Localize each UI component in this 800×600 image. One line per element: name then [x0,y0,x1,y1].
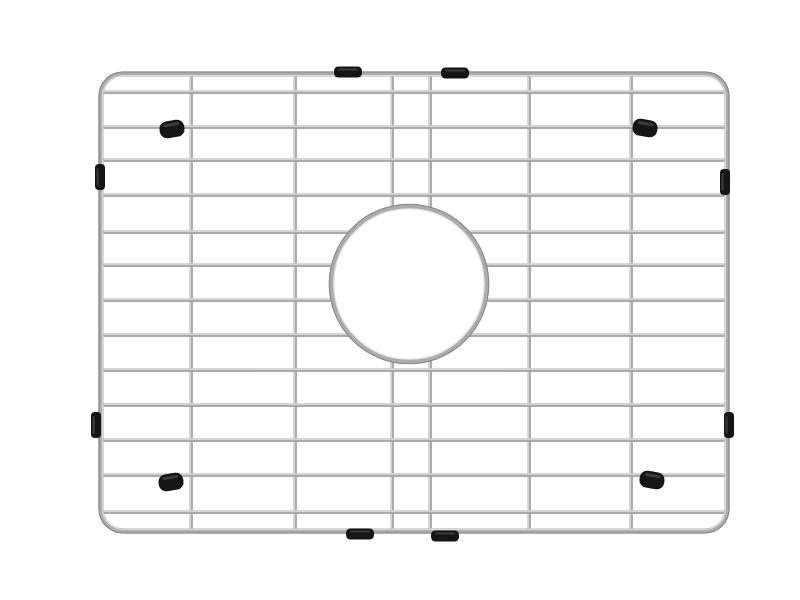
vertical-wire [294,76,296,529]
horizontal-wire [103,299,725,301]
frame-bumper-horizontal [346,529,374,540]
horizontal-wire [103,511,725,513]
rubber-bumpers [91,67,734,542]
horizontal-wire [103,334,725,336]
frame-bumper-horizontal [441,68,469,79]
wire-lattice [103,76,725,529]
horizontal-wire [103,439,725,441]
frame-bumper-vertical [91,412,101,438]
rubber-foot [638,469,666,490]
vertical-wire [391,76,393,529]
frame-bumper-vertical [95,164,105,190]
horizontal-wire [103,474,725,476]
frame-bumper-vertical [720,169,730,195]
frame-bumper-vertical [724,412,734,438]
horizontal-wire [103,264,725,266]
vertical-wire [190,76,192,529]
horizontal-wire [103,404,725,406]
vertical-wire [630,76,632,529]
sink-grid-photo [0,0,800,600]
rubber-foot [158,118,186,139]
horizontal-wire [103,159,725,161]
drain-ring [329,204,489,364]
product-photo-canvas [0,0,800,600]
vertical-wire [429,76,431,529]
horizontal-wire [103,369,725,371]
frame-bumper-horizontal [431,531,459,542]
horizontal-wire [103,126,725,128]
rubber-foot [631,117,659,138]
horizontal-wire [103,231,725,233]
frame-bumper-horizontal [334,67,362,78]
grid-frame [99,72,729,533]
vertical-wire [528,76,530,529]
horizontal-wire [103,194,725,196]
horizontal-wire [103,91,725,93]
